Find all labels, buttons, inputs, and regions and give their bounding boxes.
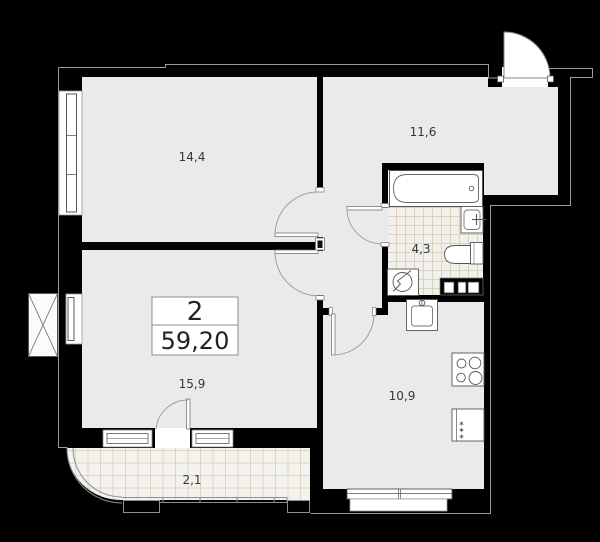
floor-plan: * * * 2 59,20 14,4 11,6 4,3 15,9 10,9 2,… bbox=[0, 0, 600, 542]
living-room-door-opening bbox=[317, 192, 323, 237]
apartment-rooms-count: 2 bbox=[187, 297, 204, 327]
living-room-label: 14,4 bbox=[179, 150, 206, 164]
floor-plan-svg: * * * 2 59,20 14,4 11,6 4,3 15,9 10,9 2,… bbox=[0, 0, 600, 542]
bedroom-door-opening bbox=[317, 251, 323, 295]
bathtub bbox=[390, 171, 483, 207]
hallway-label: 11,6 bbox=[410, 125, 437, 139]
kitchen-window-frame bbox=[347, 489, 452, 499]
balcony-label: 2,1 bbox=[182, 473, 201, 487]
stove-burner-4 bbox=[469, 372, 482, 385]
balcony-pier-left bbox=[124, 501, 160, 513]
vent-shaft-block bbox=[440, 278, 483, 295]
fridge-mark-3: * bbox=[459, 434, 464, 444]
apartment-info-box: 2 59,20 bbox=[152, 297, 238, 355]
stove-burner-1 bbox=[457, 359, 466, 368]
jamb-cap-1 bbox=[316, 188, 324, 193]
living-room-window-base bbox=[59, 91, 82, 215]
balcony-door-leaf bbox=[187, 399, 191, 429]
apartment-total-area: 59,20 bbox=[161, 327, 230, 355]
door-hinge-block-core bbox=[318, 241, 323, 249]
living-room-door-leaf bbox=[275, 233, 318, 237]
entrance-door-jamb-right bbox=[548, 76, 554, 82]
toilet-bowl bbox=[445, 246, 471, 264]
kitchen-door-opening bbox=[332, 308, 373, 315]
kitchen-door-leaf bbox=[332, 314, 336, 355]
bedroom-label: 15,9 bbox=[179, 377, 206, 391]
bathtub-drain bbox=[469, 186, 474, 191]
balcony-pier-right bbox=[288, 501, 310, 513]
bathroom-door-opening bbox=[382, 208, 388, 243]
toilet-tank bbox=[471, 243, 484, 265]
jamb-cap-4 bbox=[381, 243, 389, 247]
jamb-cap-6 bbox=[373, 308, 377, 316]
kitchen-label: 10,9 bbox=[389, 389, 416, 403]
vent-duct-3 bbox=[468, 282, 479, 293]
vent-duct-2 bbox=[458, 282, 466, 293]
bedroom-door-leaf bbox=[275, 250, 318, 254]
vent-duct-1 bbox=[444, 282, 454, 293]
bathroom-label: 4,3 bbox=[411, 242, 430, 256]
stove-burner-3 bbox=[457, 373, 466, 382]
entrance-door-jamb-left bbox=[498, 76, 504, 82]
bathroom-door-leaf bbox=[347, 207, 382, 211]
kitchen-window-sill bbox=[350, 499, 447, 511]
jamb-cap-2 bbox=[316, 296, 324, 301]
balcony-door-opening bbox=[155, 428, 190, 448]
stove-burner-2 bbox=[469, 357, 481, 369]
shaft-box bbox=[29, 294, 58, 357]
